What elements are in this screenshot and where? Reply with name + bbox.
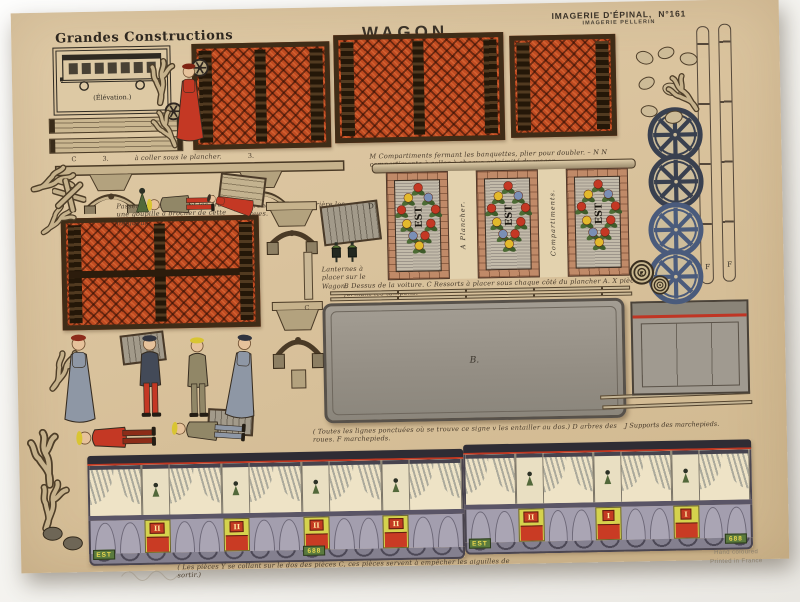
door-window <box>515 453 544 504</box>
passenger-glyph <box>391 477 401 493</box>
class-door: I <box>595 507 622 540</box>
divider-label: Compartiments. <box>548 189 557 256</box>
ring-buffer-piece <box>650 275 670 295</box>
strip-upper-row <box>463 449 752 505</box>
class-plate: II <box>309 520 324 531</box>
print-sheet: Grandes Constructions WAGON IMAGERIE D'É… <box>11 0 790 573</box>
small-dark-piece <box>63 536 83 550</box>
class-door: I <box>673 505 700 538</box>
door-window <box>671 450 700 501</box>
number-plate: 688 <box>725 533 747 543</box>
buffer-piece <box>656 45 676 61</box>
paper-figure <box>219 330 266 423</box>
class-door: II <box>518 508 545 541</box>
paper-figure <box>167 409 251 451</box>
class-door: II <box>144 519 171 552</box>
class-door: II <box>383 515 410 548</box>
label-d: D <box>368 202 375 211</box>
wagon-side-strip: II II II II EST688 <box>87 449 465 564</box>
strip-lower-row: II I I <box>464 504 753 543</box>
wreath-art: EST <box>482 177 536 258</box>
curtained-window <box>89 465 142 516</box>
door-panel: EST <box>476 169 540 278</box>
door-window <box>221 463 250 514</box>
c-strip-piece <box>303 252 313 300</box>
panel-wall <box>170 518 224 552</box>
est-plate: EST <box>469 538 491 548</box>
paper-figure <box>72 417 161 459</box>
f-strip-piece: F <box>718 24 736 282</box>
door-divider: Compartiments. <box>538 169 568 278</box>
class-door: II <box>224 518 251 551</box>
curtained-window <box>169 463 222 514</box>
small-dark-piece <box>43 527 63 541</box>
door-panel: EST <box>566 168 630 277</box>
door-lower-panel <box>675 522 697 537</box>
photo-backdrop: Grandes Constructions WAGON IMAGERIE D'É… <box>0 0 800 602</box>
wreath-art: EST <box>572 176 626 257</box>
label-f: F <box>703 263 713 271</box>
passenger-glyph <box>603 469 613 485</box>
buffer-piece <box>636 74 657 92</box>
passenger-glyph <box>231 480 241 496</box>
door-window <box>301 461 330 512</box>
panel-wall <box>409 514 463 548</box>
passenger-glyph <box>525 470 535 486</box>
svg-text:EST: EST <box>503 205 514 226</box>
caption-supports: J Supports des marchepieds. <box>625 420 720 430</box>
caption-ponctuees: ( Toutes les lignes ponctuées où se trou… <box>313 422 623 445</box>
svg-text:EST: EST <box>413 206 424 227</box>
caption-num: 3. <box>248 152 254 161</box>
plate-number: N°161 <box>658 8 686 19</box>
lantern-piece <box>346 241 358 263</box>
lantern-piece <box>330 241 342 263</box>
paper-figure <box>57 330 102 427</box>
quilted-panel <box>333 32 505 143</box>
panel-wall <box>621 506 673 540</box>
panel-wall <box>544 507 596 541</box>
door-divider: A Plancher. <box>448 171 478 280</box>
paper-figure <box>170 60 210 145</box>
curtained-window <box>409 459 462 510</box>
passenger-glyph <box>311 479 321 495</box>
class-plate: I <box>603 510 614 521</box>
panel-wall <box>329 515 383 549</box>
label-c: C <box>304 304 309 313</box>
end-wall-piece <box>630 299 750 395</box>
door-lower-panel <box>146 536 168 551</box>
svg-text:EST: EST <box>593 203 604 224</box>
door-panel: EST <box>386 171 450 280</box>
paper-figure <box>177 334 219 423</box>
class-plate: II <box>524 511 539 522</box>
curtained-window <box>699 449 750 500</box>
caption-num: 3. <box>102 155 108 164</box>
credit-printed: Printed in France <box>686 557 786 568</box>
wagon-side-strip: II I I EST688 <box>463 439 753 553</box>
pencil-mark <box>119 566 179 581</box>
door-lower-panel <box>226 535 248 550</box>
number-plate: 688 <box>303 545 325 555</box>
passenger-glyph <box>681 467 691 483</box>
strip-upper-row <box>87 459 464 516</box>
door-window <box>381 460 410 511</box>
printer-credit: Hand coloured Printed in France <box>686 548 786 568</box>
door-lower-panel <box>385 532 407 547</box>
door-window <box>593 452 622 503</box>
divider-label: A Plancher. <box>458 200 467 249</box>
passenger-glyph <box>151 482 161 498</box>
svg-text:K: K <box>639 271 644 278</box>
curtained-window <box>249 462 302 513</box>
star-piece <box>52 178 87 213</box>
publisher-block: IMAGERIE D'ÉPINAL, N°161 IMAGERIE PELLER… <box>509 8 729 30</box>
class-plate: II <box>389 518 404 529</box>
door-lower-panel <box>520 525 542 540</box>
axle-arch-piece <box>270 299 326 394</box>
quilted-panel <box>509 34 617 138</box>
end-wall-panels <box>641 322 740 388</box>
curtained-window <box>329 460 382 511</box>
buffer-piece <box>634 49 655 67</box>
paper-figure <box>129 330 172 423</box>
curtained-window <box>465 454 516 505</box>
class-plate: II <box>229 521 244 532</box>
door-lower-panel <box>598 524 620 539</box>
label-b: B. <box>470 355 480 365</box>
panel-wall <box>250 517 304 551</box>
curtained-window <box>543 452 594 503</box>
label-f: F <box>725 261 735 269</box>
door-window <box>141 464 170 515</box>
curtained-window <box>621 451 672 502</box>
class-plate: I <box>680 508 691 519</box>
roof-piece-b: B. <box>322 298 626 424</box>
est-plate: EST <box>93 550 115 560</box>
board-piece: D <box>320 200 382 247</box>
wreath-art: EST <box>392 179 446 260</box>
door-panel-strip: ESTA Plancher. ESTCompartiments. <box>386 168 630 281</box>
quilted-panel <box>61 215 261 331</box>
quilted-panel <box>191 41 331 150</box>
class-plate: II <box>150 523 165 534</box>
